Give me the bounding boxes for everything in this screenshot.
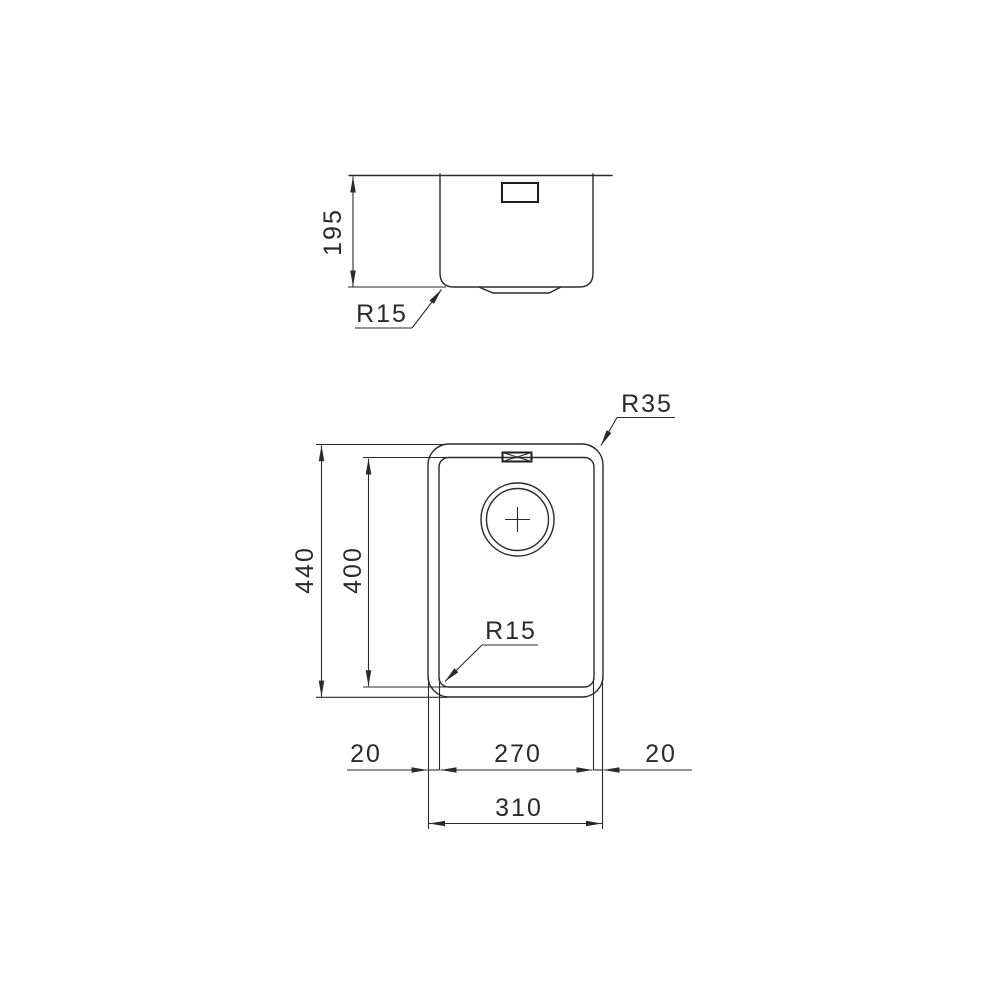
radius-label-r15-side: R15 [356, 300, 408, 328]
r15-side-leader [412, 290, 442, 329]
dim-text-20-left: 20 [350, 740, 382, 768]
dim-text-20-right: 20 [645, 740, 677, 768]
dim-text-195: 195 [319, 208, 347, 256]
plan-view: 440 400 R35 R15 20 [291, 390, 692, 829]
radius-label-r15-plan: R15 [485, 617, 537, 645]
r35-leader [601, 418, 617, 446]
sink-body-outline [440, 174, 593, 287]
dim-text-400: 400 [339, 546, 367, 594]
dim-text-440: 440 [291, 546, 319, 594]
dim-text-310: 310 [495, 794, 543, 822]
r15-plan-leader [445, 645, 482, 682]
side-view-elevation: 195 R15 [319, 174, 612, 328]
radius-label-r35: R35 [621, 390, 673, 418]
sink-outer-outline [428, 444, 603, 697]
overflow-hole [502, 183, 538, 202]
technical-drawing-page: 195 R15 440 [0, 0, 1000, 1000]
drain-boss [480, 288, 560, 294]
bowl-inner-outline [439, 458, 594, 688]
dim-text-270: 270 [494, 740, 542, 768]
sink-technical-drawing: 195 R15 440 [0, 0, 1000, 1000]
